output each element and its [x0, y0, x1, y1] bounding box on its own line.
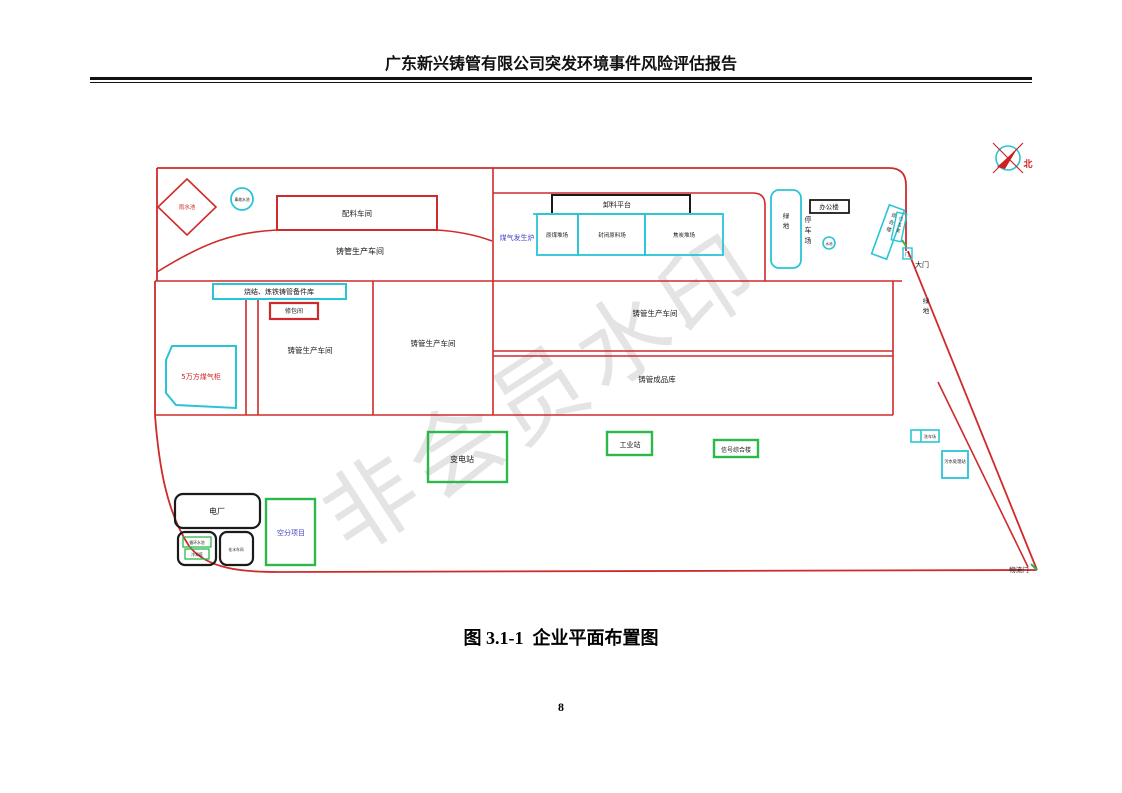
gate-box-label: 门: [905, 251, 910, 258]
watermark-text: 非会员水印: [304, 213, 782, 575]
guard-room-label: 门卫室: [896, 215, 904, 233]
circulating-pool-label: 循环水池: [189, 540, 204, 545]
site-boundary-left: [155, 168, 157, 415]
enclosed-material-yard-label: 封闭原料场: [598, 231, 626, 239]
water-treatment-label: 化水车间: [228, 547, 243, 552]
unloading-platform-label: 卸料平台: [603, 200, 631, 209]
spare-parts-warehouse-label: 烧结、炼铁铸管备件库: [244, 287, 314, 296]
batching-workshop-label: 配料车间: [342, 208, 372, 218]
corner-road-arc: [157, 230, 492, 272]
document-page: 广东新兴铸管有限公司突发环境事件风险评估报告 非会员水印 配料车间 雨水池 修包…: [0, 0, 1122, 793]
site-boundary-bottom: [155, 415, 1037, 572]
roadside-green-label: 绿地: [923, 296, 930, 315]
green-space-label: 绿地: [783, 211, 790, 230]
logistics-gate-label: 物流门: [1009, 565, 1029, 574]
industrial-station-label: 工业站: [620, 440, 641, 449]
substation-label: 变电站: [450, 454, 474, 464]
compass-north-label: 北: [1023, 158, 1032, 170]
site-plan-figure: 非会员水印 配料车间 雨水池 修包间 事故水池 原煤堆场 封闭原料场 焦炭堆场: [0, 0, 1122, 793]
page-number: 8: [0, 700, 1122, 715]
rainwater-pool-label: 雨水池: [179, 203, 196, 211]
pipe-workshop-mid-label: 铸管生产车间: [411, 338, 456, 348]
gas-holder-label: 5万方煤气柜: [181, 372, 220, 381]
parking-lot-label: 停车场: [805, 215, 812, 245]
signal-building-label: 信号综合楼: [721, 446, 751, 454]
rail-lines: [246, 299, 258, 415]
cooling-tower-label: 冷却塔: [191, 552, 203, 557]
coke-yard-label: 焦炭堆场: [673, 231, 696, 239]
air-separation-label: 空分项目: [277, 528, 305, 537]
power-plant-label: 电厂: [209, 506, 225, 516]
finished-pipe-warehouse-label: 铸管成品库: [638, 374, 676, 384]
pipe-workshop-nw-label: 铸管生产车间: [336, 246, 384, 256]
repair-room-label: 修包间: [285, 307, 303, 315]
pipe-workshop-east-label: 铸管生产车间: [633, 308, 678, 318]
sewage-station-label: 污水处理站: [944, 458, 966, 465]
compass-arrow: [997, 149, 1017, 169]
compass: 北: [993, 143, 1033, 173]
car-wash-label: 洗车场: [924, 433, 936, 439]
small-pool-label: 水池: [826, 241, 834, 246]
figure-caption: 图 3.1-1 企业平面布置图: [0, 624, 1122, 650]
gas-generator-label: 煤气发生炉: [500, 233, 535, 242]
main-gate-label: 大门: [915, 260, 929, 269]
pipe-workshop-west-label: 铸管生产车间: [288, 345, 333, 355]
accident-pool-label: 事故水池: [234, 197, 249, 202]
raw-coal-yard-label: 原煤堆场: [546, 231, 569, 239]
office-building-label: 办公楼: [819, 202, 839, 211]
inner-road-diagonal: [938, 382, 1028, 567]
